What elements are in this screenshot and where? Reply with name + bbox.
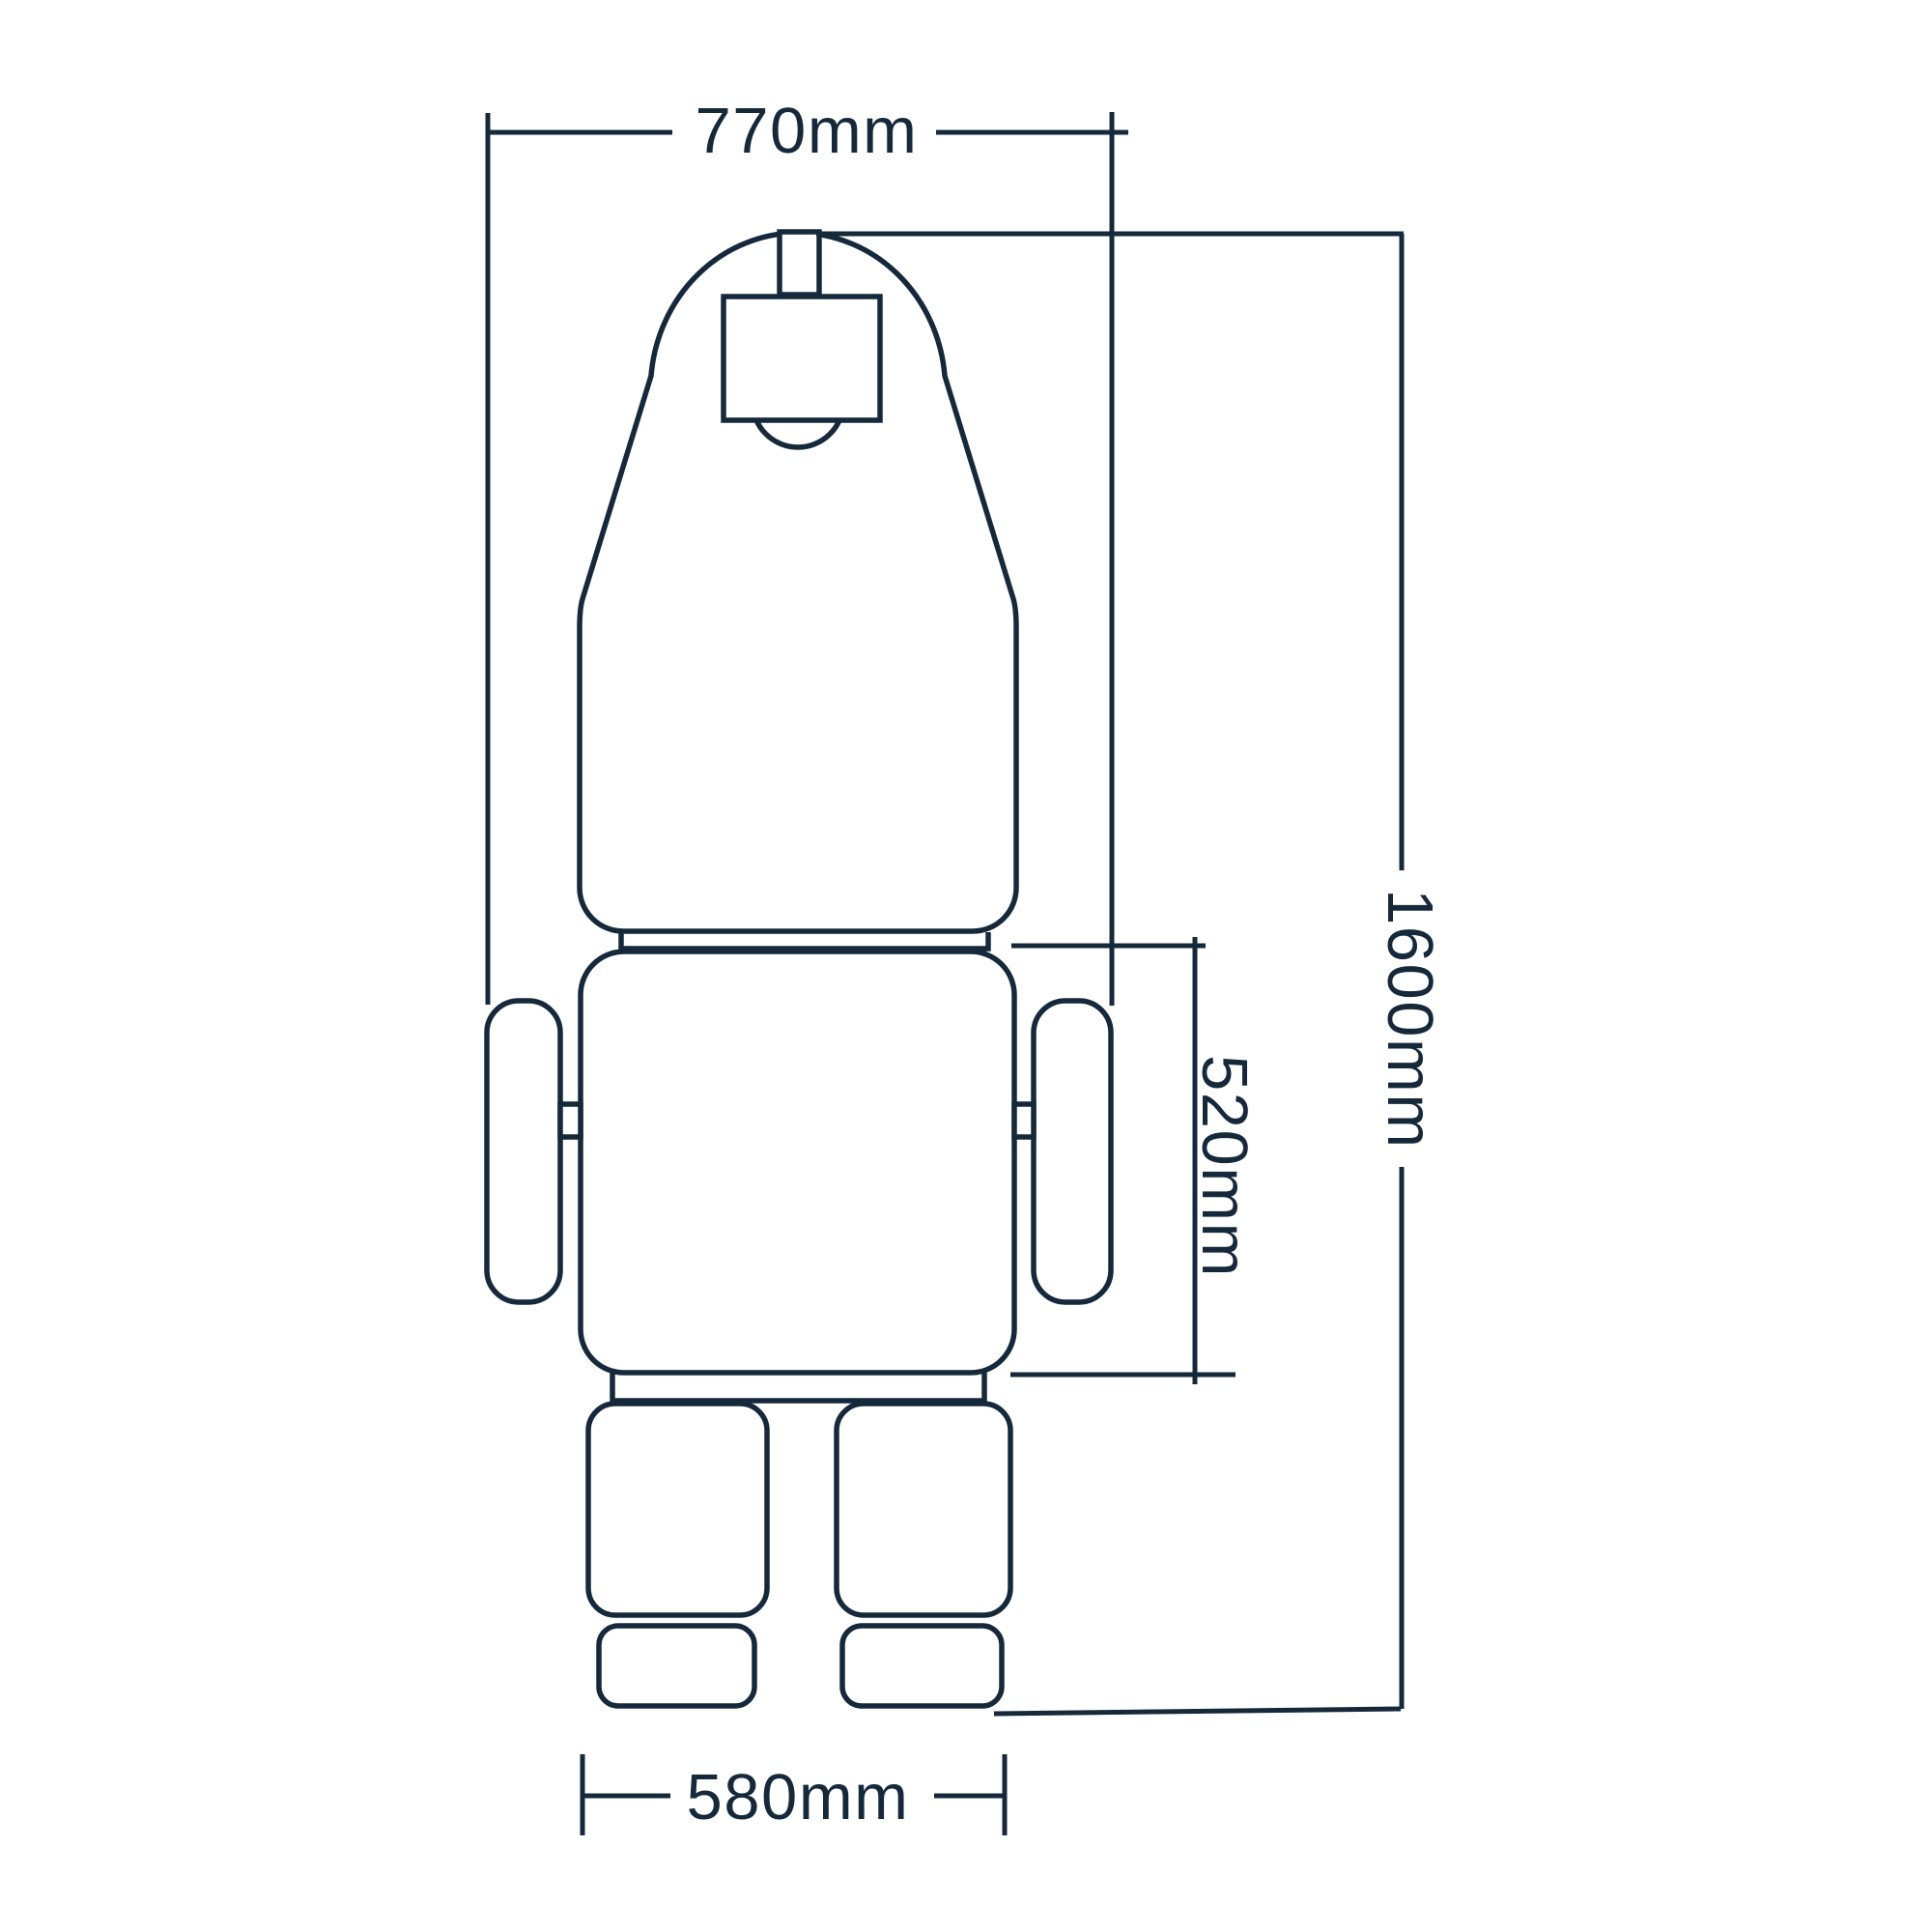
svg-text:770mm: 770mm (696, 95, 919, 167)
svg-text:520mm: 520mm (1188, 1055, 1261, 1278)
svg-text:580mm: 580mm (687, 1761, 910, 1833)
svg-text:1600mm: 1600mm (1374, 889, 1446, 1150)
